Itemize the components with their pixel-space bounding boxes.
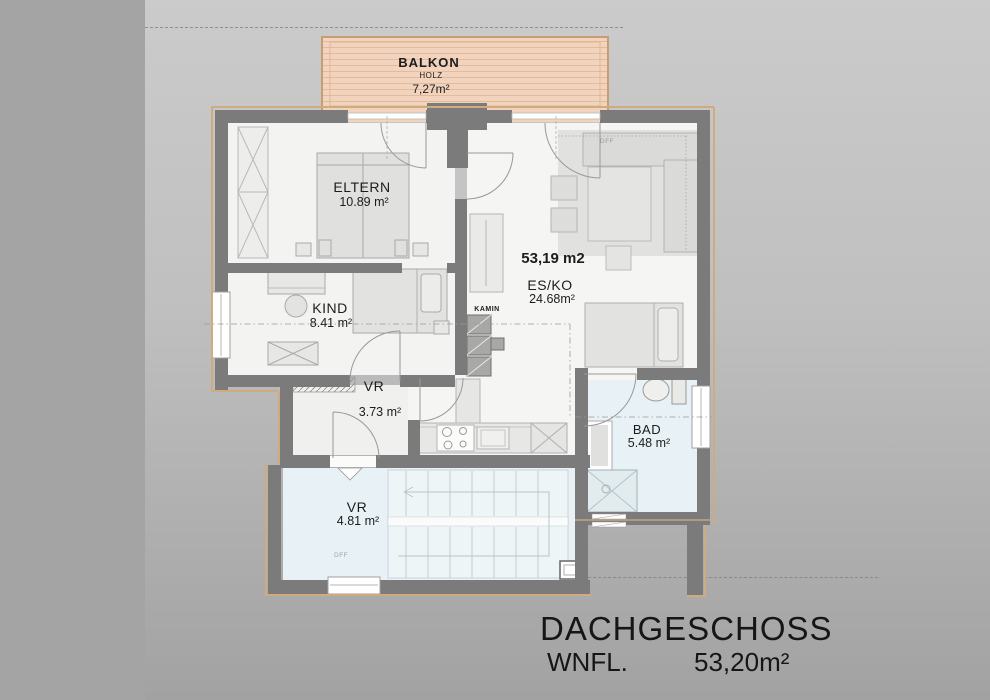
kind-area: 8.41 m² <box>310 317 352 330</box>
kind-name: KIND <box>312 301 347 315</box>
eltern-nightstand-left <box>296 243 311 256</box>
kamin-label: KAMIN <box>474 306 499 313</box>
vr-lower-name: VR <box>347 500 367 514</box>
esko-total-area: 53,19 m2 <box>521 251 584 266</box>
floor-plan-svg <box>0 0 990 700</box>
esko-area: 24.68m² <box>529 293 575 306</box>
kind-bed <box>353 269 447 333</box>
bad-name: BAD <box>633 423 661 436</box>
kind-window <box>212 292 230 358</box>
esko-daybed <box>585 303 683 367</box>
esko-name: ES/KO <box>527 278 572 292</box>
vr-upper-area: 3.73 m² <box>359 406 401 419</box>
vr-lower-area: 4.81 m² <box>337 515 379 528</box>
kitchen-tall-cabinet <box>456 379 480 423</box>
esko-chair-2 <box>551 208 577 232</box>
shower <box>587 470 637 512</box>
kind-side-table <box>434 321 449 334</box>
esko-chair-1 <box>551 176 577 200</box>
vr-upper-name: VR <box>364 379 384 393</box>
balkon-material: HOLZ <box>419 72 442 80</box>
eltern-name: ELTERN <box>333 180 390 194</box>
kitchen-fridge-unit <box>531 423 567 453</box>
living-area-value: 53,20m² <box>694 647 789 678</box>
living-area-label: WNFL. <box>547 647 628 678</box>
balkon-area: 7,27m² <box>412 83 449 95</box>
washbasin <box>587 421 612 470</box>
floor-plan-page: BALKON HOLZ 7,27m² ELTERN 10.89 m² KIND … <box>0 0 990 700</box>
staircase <box>388 470 580 579</box>
kitchen-stove <box>437 425 474 451</box>
stair-door-threshold <box>330 456 376 467</box>
dff-label-vr: DFF <box>334 553 348 560</box>
eltern-area: 10.89 m² <box>339 196 388 209</box>
kind-chair <box>285 295 307 317</box>
dff-label-esko: DFF <box>600 139 614 146</box>
eltern-nightstand-right <box>413 243 428 256</box>
kind-desk <box>268 271 325 294</box>
kind-dresser <box>268 342 318 365</box>
bad-area: 5.48 m² <box>628 437 670 450</box>
floor-title: DACHGESCHOSS <box>540 610 833 648</box>
eltern-wardrobe <box>238 127 268 258</box>
balcony-deck <box>322 37 608 113</box>
balkon-name: BALKON <box>398 56 460 69</box>
stair-window <box>328 577 380 594</box>
esko-stool <box>606 246 631 270</box>
kitchen-sink <box>477 427 509 449</box>
esko-sideboard <box>470 214 503 292</box>
